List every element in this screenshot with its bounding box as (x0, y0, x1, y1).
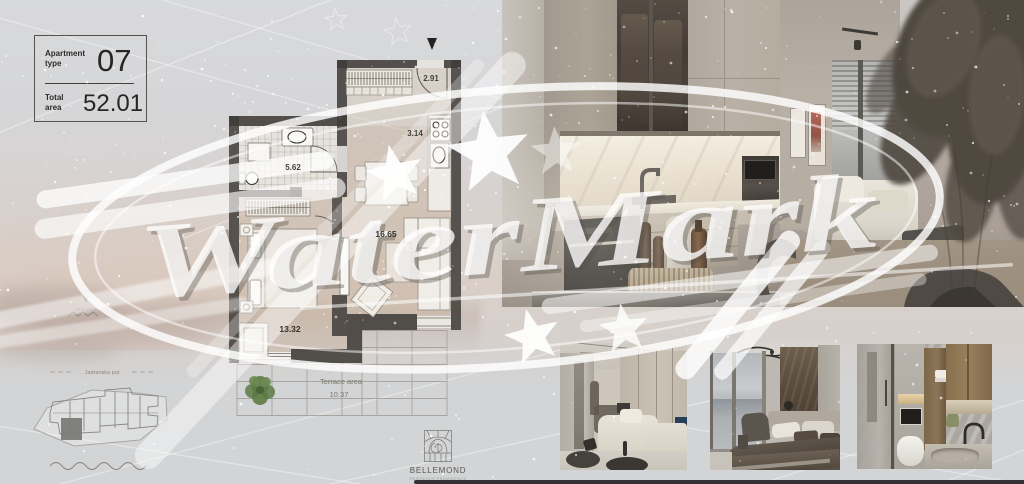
svg-text:2.91: 2.91 (423, 74, 439, 83)
svg-text:16.65: 16.65 (375, 229, 397, 239)
svg-text:5.62: 5.62 (285, 163, 301, 172)
svg-text:3.14: 3.14 (407, 129, 423, 138)
svg-text:13.32: 13.32 (279, 324, 301, 334)
